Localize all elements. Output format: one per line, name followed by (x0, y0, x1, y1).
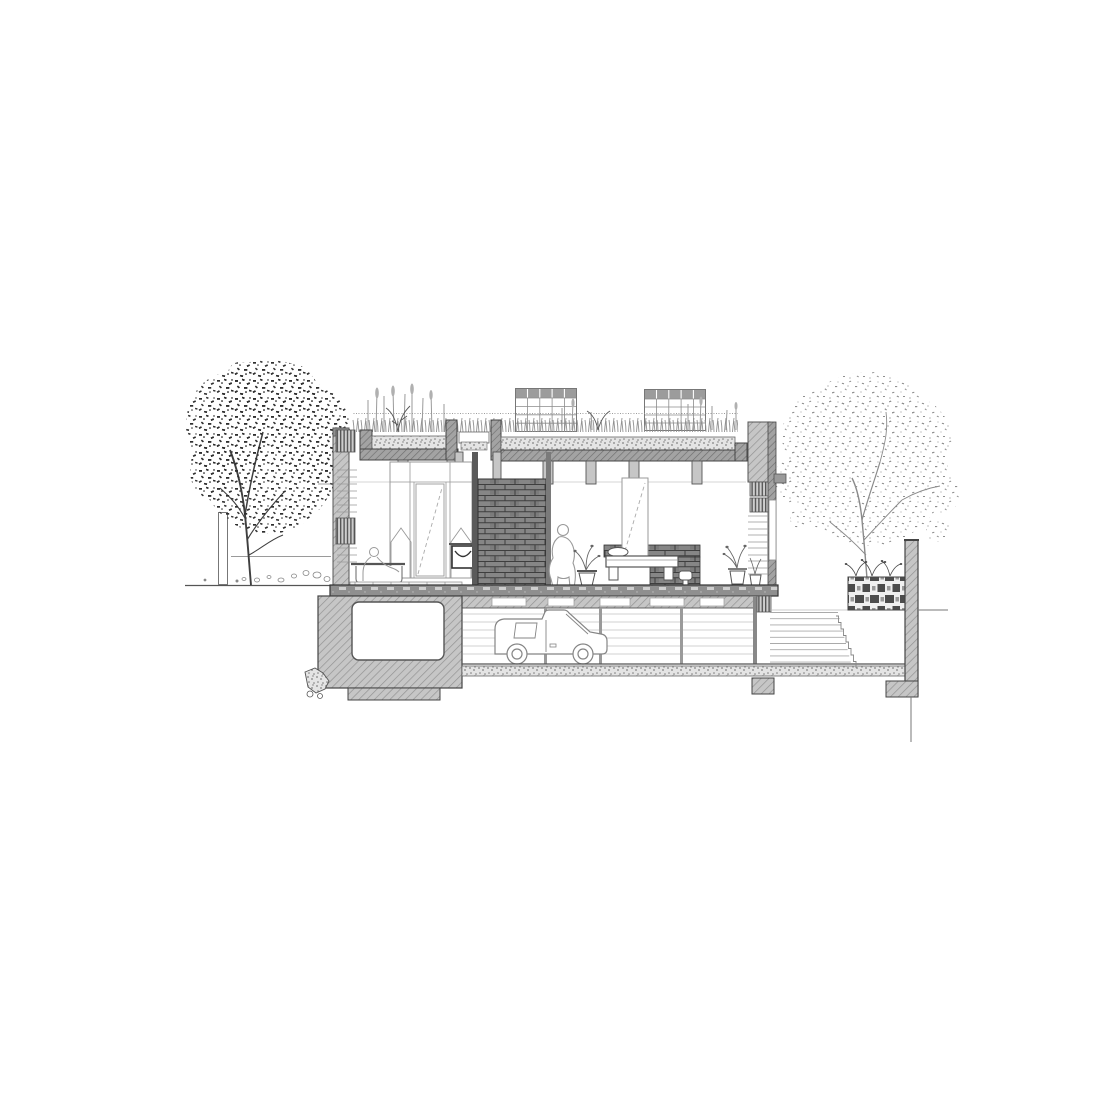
right-tree-foliage (774, 372, 959, 546)
garage (462, 596, 918, 694)
section-drawing (0, 0, 1100, 1100)
van (495, 610, 607, 664)
stair-step-profile (836, 616, 856, 668)
storage-void (352, 602, 444, 660)
floor-drainage-band (462, 666, 918, 676)
footing-right (752, 678, 774, 694)
exterior-right (770, 540, 948, 742)
screen-wall-plants (845, 559, 903, 576)
boundary-wall-footing (886, 681, 918, 697)
boundary-wall (886, 540, 948, 742)
left-tree-foliage (186, 360, 350, 534)
roof-gutter (461, 442, 487, 450)
window (769, 500, 776, 560)
right-tree (774, 372, 959, 608)
bollard (219, 513, 228, 585)
stool (679, 571, 692, 580)
architectural-section-canvas (0, 0, 1100, 1100)
basement (305, 596, 918, 700)
footing-left (348, 688, 440, 700)
bathtub (351, 564, 405, 583)
pillow (608, 548, 628, 557)
perforated-brick-screen (848, 577, 906, 610)
left-tree (186, 360, 350, 585)
